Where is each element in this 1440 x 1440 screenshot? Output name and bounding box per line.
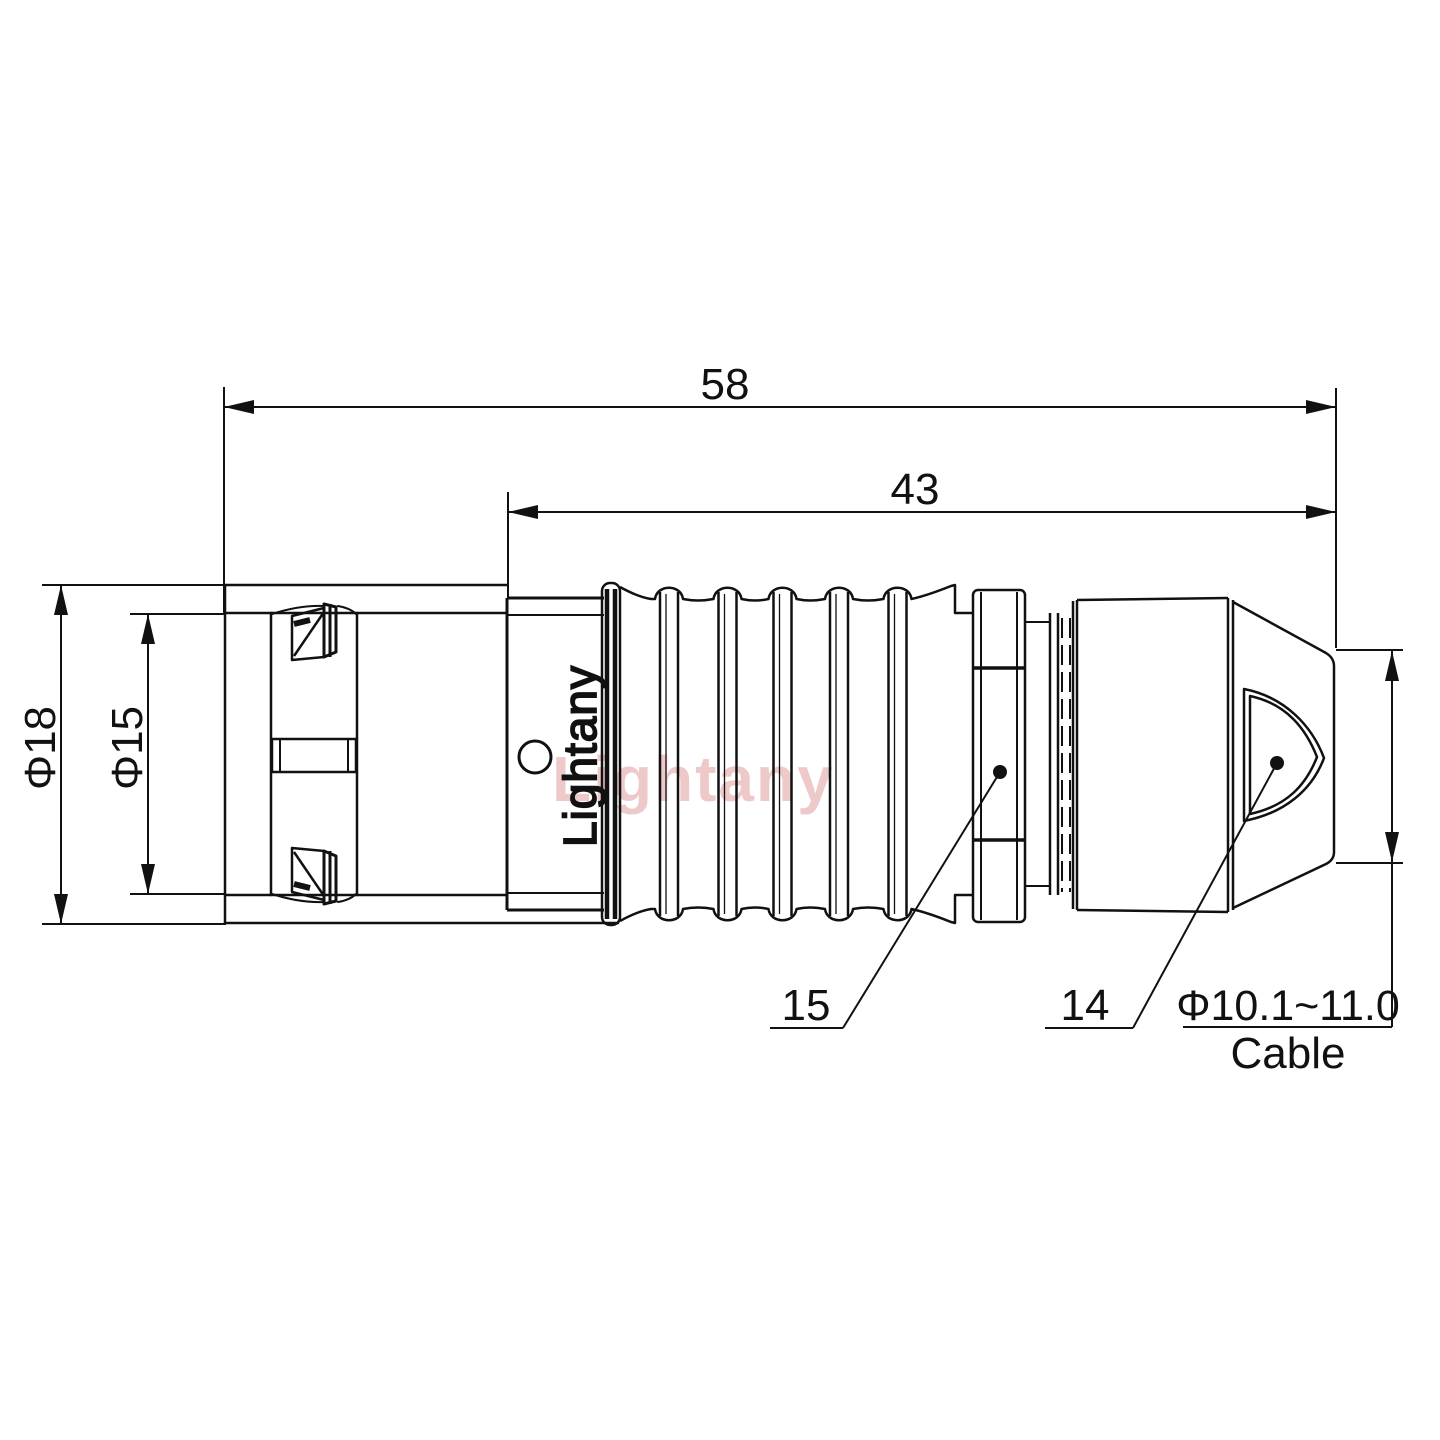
back-nut-outline [1073,598,1228,912]
dim-inner-diameter-label: Φ15 [103,706,152,790]
technical-drawing-canvas: Lightany 58 43 Φ18 [0,0,1440,1440]
arrowhead-down-icon [141,864,155,894]
collar-outline [973,590,1025,922]
body-hole [519,741,551,773]
thread-neck [1025,613,1070,895]
arrowhead-up-icon [141,614,155,644]
arrowhead-right-icon [1306,400,1336,414]
dim-cable [1183,650,1403,1027]
leader-line [843,772,1000,1028]
dim-outer-diameter-label: Φ18 [16,706,65,790]
cone-window-inner [1250,696,1317,814]
callout-15-label: 15 [782,981,831,1030]
rib-walls [660,592,907,916]
callout-14-label: 14 [1061,981,1110,1030]
brand-engraving-label: Lightany [554,665,606,847]
arrowhead-up-icon [54,585,68,615]
dim-cable-range-label: Φ10.1~11.0 [1176,982,1400,1030]
rear-cone-outline [1233,600,1334,910]
arrowhead-left-icon [224,400,254,414]
connector-technical-drawing: 58 43 Φ18 Φ15 [0,0,1440,1440]
dim-overall-length-label: 58 [701,360,750,409]
dim-cable-word-label: Cable [1231,1029,1346,1078]
strain-relief-ribs [620,585,973,923]
dim-front-length-label: 43 [891,465,940,514]
latch-slot [272,739,356,772]
arrowhead-down-icon [1385,832,1399,862]
arrowhead-down-icon [54,894,68,924]
arrowhead-up-icon [1385,651,1399,681]
arrowhead-right-icon [1306,505,1336,519]
arrowhead-left-icon [508,505,538,519]
